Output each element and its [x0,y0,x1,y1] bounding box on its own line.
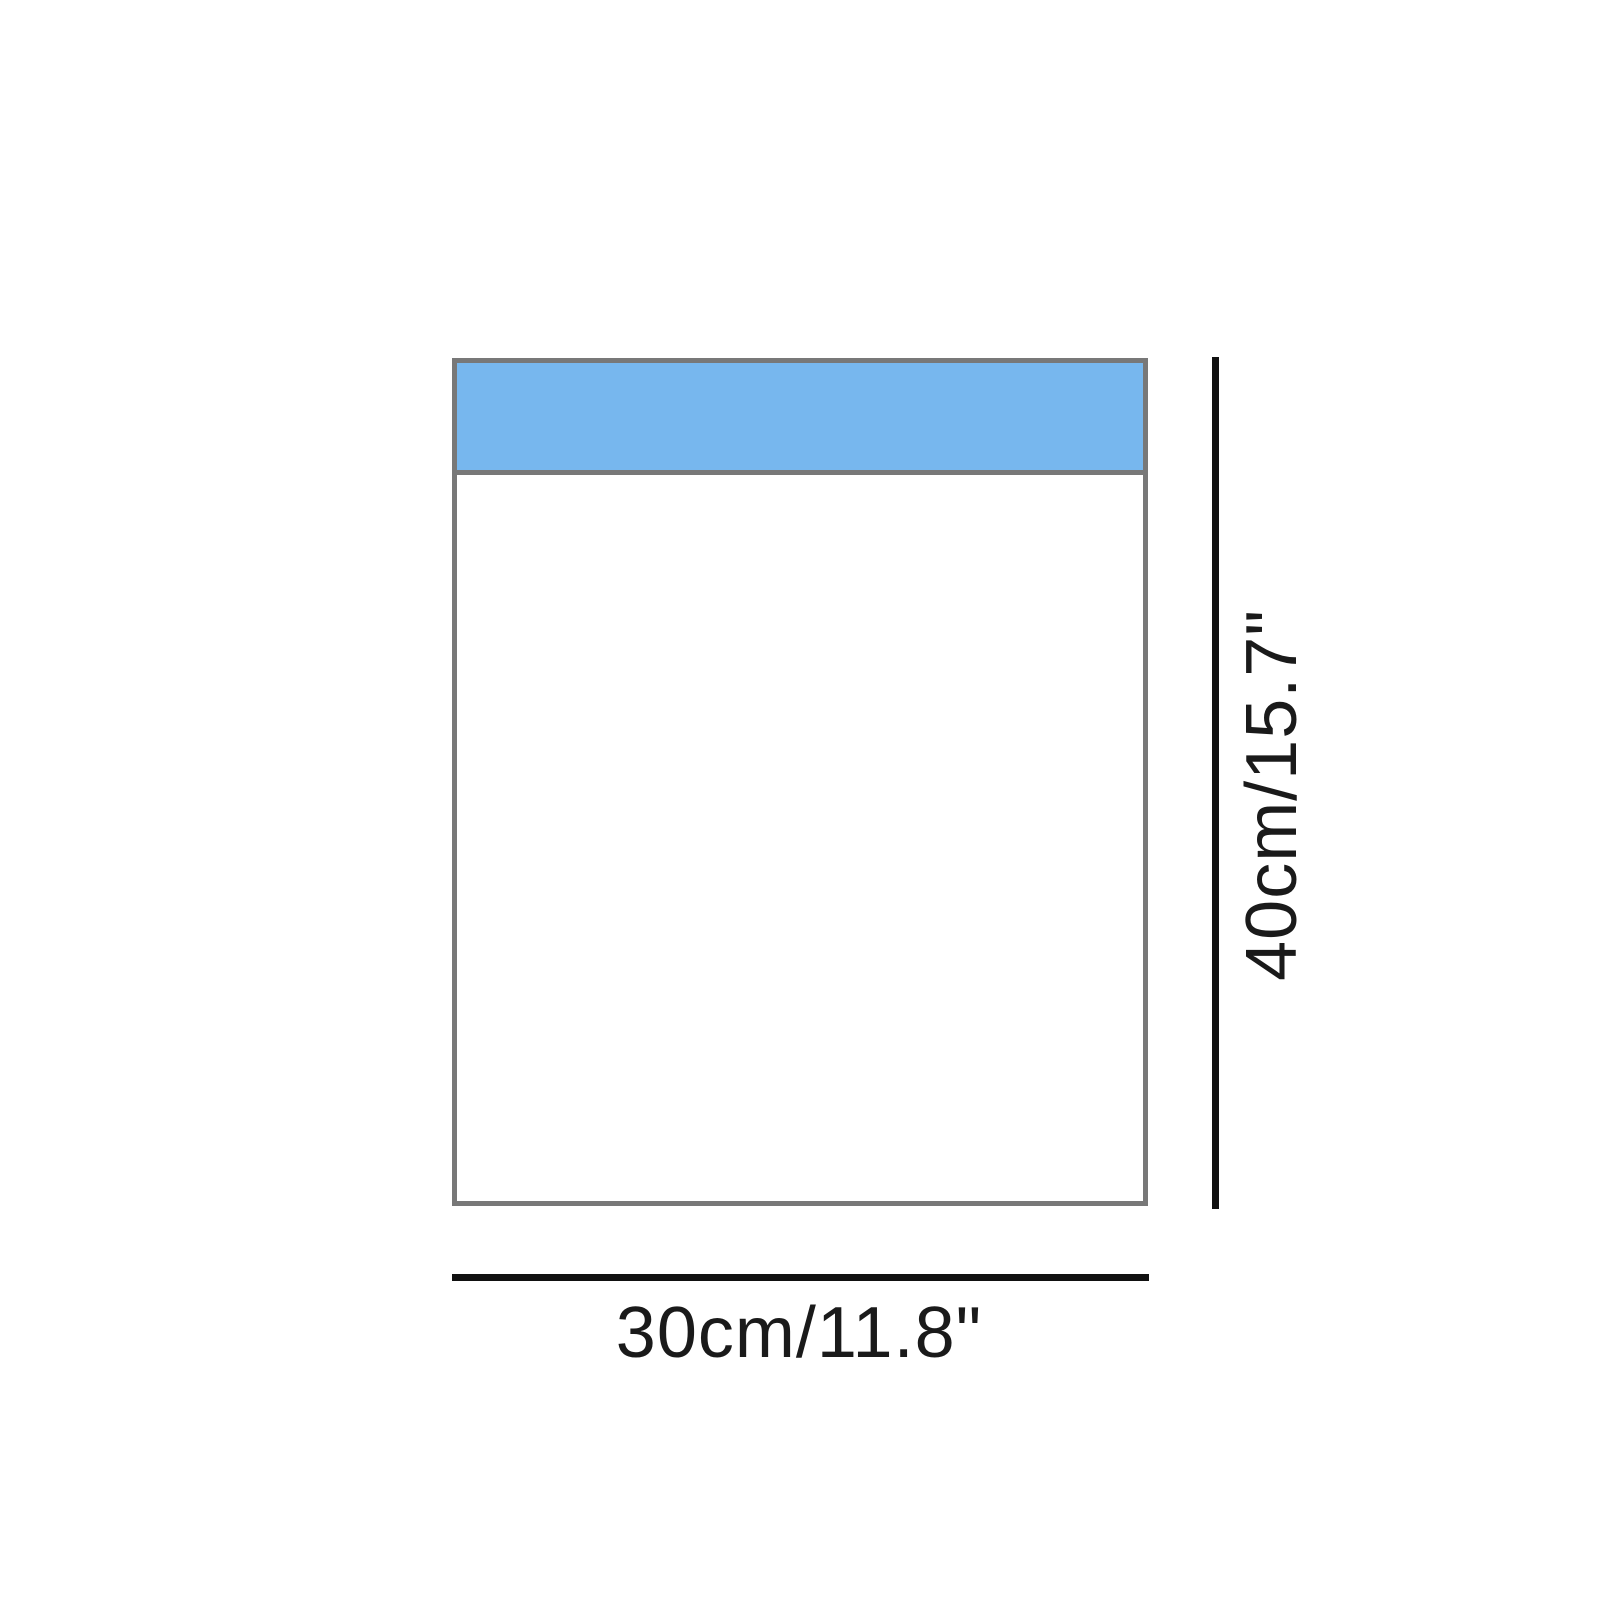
bag-top-strip [457,363,1143,475]
product-dimension-diagram: 40cm/15.7" 30cm/11.8" [0,0,1600,1600]
height-dimension-label: 40cm/15.7" [1236,609,1308,981]
bag-outline [452,358,1148,1206]
height-dimension-line [1212,357,1219,1209]
bag-body [457,475,1143,1201]
width-dimension-line [452,1274,1149,1281]
width-dimension-label: 30cm/11.8" [616,1297,982,1369]
